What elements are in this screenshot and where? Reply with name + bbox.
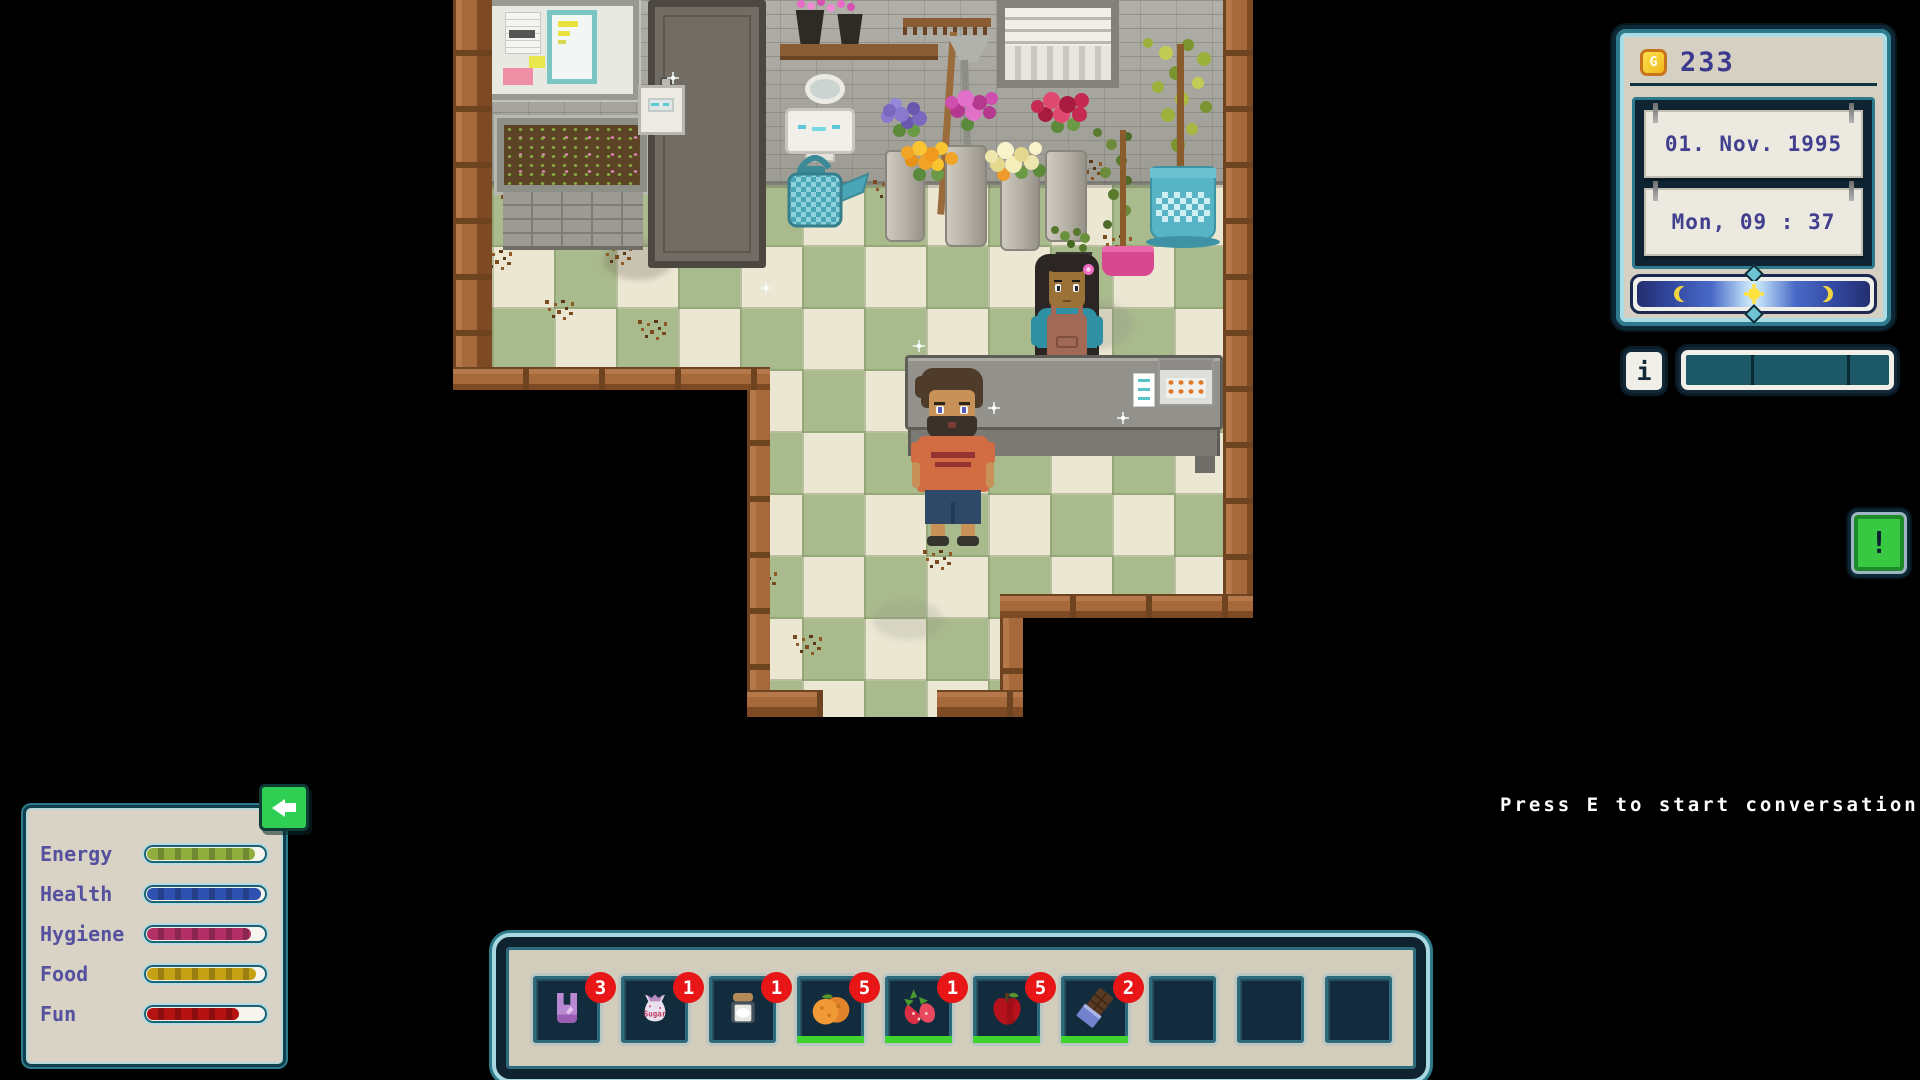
strawberries-icon — [897, 986, 941, 1034]
stat-fill — [147, 928, 251, 940]
stat-fill — [147, 848, 255, 860]
teal-plant-pot — [1150, 166, 1216, 240]
alert-button[interactable]: ! — [1848, 509, 1910, 577]
progress-segment — [1850, 355, 1889, 385]
sparkle — [1117, 412, 1129, 424]
staked-plant-leaves — [1143, 38, 1153, 48]
wood-border — [747, 690, 823, 717]
money-row: G 233 — [1630, 42, 1877, 86]
hotbar-slot-10[interactable] — [1325, 976, 1392, 1043]
stat-row-energy: Energy — [26, 834, 283, 874]
stat-row-fun: Fun — [26, 994, 283, 1034]
freshness-bar — [885, 1036, 952, 1043]
stat-bar — [144, 885, 267, 903]
wood-border — [453, 367, 770, 390]
date-plaque: 01. Nov. 1995 — [1644, 110, 1863, 178]
flower-vase — [945, 145, 987, 247]
collapse-stats-button[interactable] — [259, 784, 309, 831]
wood-border — [1000, 594, 1253, 618]
arrow-left-icon — [272, 799, 285, 817]
sticky-note-yellow — [529, 56, 545, 68]
hotbar-slot-2[interactable]: Sugar1 — [621, 976, 688, 1043]
coin-icon: G — [1640, 49, 1667, 76]
flower-vase — [1000, 165, 1040, 251]
stat-fill — [147, 1008, 239, 1020]
wall-mirror — [805, 74, 845, 104]
yellow-flowers — [901, 146, 914, 159]
hotbar-slot-7[interactable]: 2 — [1061, 976, 1128, 1043]
stat-label: Energy — [40, 842, 144, 866]
wash-basin — [638, 85, 685, 135]
sparkle — [913, 340, 925, 352]
stat-label: Fun — [40, 1002, 144, 1026]
freshness-bar — [973, 1036, 1040, 1043]
chocolate-icon — [1074, 987, 1116, 1033]
item-count-badge: 1 — [937, 972, 968, 1003]
item-count-badge: 1 — [761, 972, 792, 1003]
item-count-badge: 5 — [849, 972, 880, 1003]
window — [997, 0, 1119, 88]
hotbar-slot-6[interactable]: 5 — [973, 976, 1040, 1043]
shelf-flowers — [797, 0, 805, 8]
oranges-icon — [809, 986, 853, 1034]
hotbar-slot-4[interactable]: 5 — [797, 976, 864, 1043]
daynight-bar — [1630, 274, 1877, 314]
pink-plant-pot — [1102, 246, 1154, 276]
sugar-bag-icon: Sugar — [635, 988, 675, 1032]
stat-bar — [144, 965, 267, 983]
sparkle — [667, 72, 679, 84]
stat-bar — [144, 845, 267, 863]
wood-border — [1223, 0, 1253, 597]
sticky-note-pink — [503, 68, 533, 85]
progress-bar — [1678, 347, 1897, 393]
hotbar-slot-3[interactable]: 1 — [709, 976, 776, 1043]
moon-icon — [1817, 286, 1833, 302]
calendar-box: 01. Nov. 1995 Mon, 09 : 37 — [1632, 97, 1875, 269]
inventory-hotbar: 3Sugar115152 — [496, 937, 1426, 1079]
item-count-badge: 1 — [673, 972, 704, 1003]
stat-label: Health — [40, 882, 144, 906]
item-count-badge: 5 — [1025, 972, 1056, 1003]
window-blinds — [1005, 8, 1111, 46]
stat-bar — [144, 1005, 267, 1023]
teal-poster — [547, 10, 597, 84]
hotbar-slot-9[interactable] — [1237, 976, 1304, 1043]
sink — [785, 108, 855, 154]
cream-flowers — [985, 150, 998, 163]
stat-bar — [144, 925, 267, 943]
svg-text:Sugar: Sugar — [643, 1009, 666, 1018]
flower-vase — [885, 150, 925, 242]
watering-can — [771, 152, 871, 232]
hotbar-slot-1[interactable]: 3 — [533, 976, 600, 1043]
progress-segment — [1686, 355, 1751, 385]
hotbar-slot-5[interactable]: 1 — [885, 976, 952, 1043]
sparkle — [760, 282, 772, 294]
character-shopkeeper[interactable] — [1031, 248, 1103, 360]
item-count-badge: 3 — [585, 972, 616, 1003]
wood-border — [453, 0, 492, 390]
planter-base — [503, 192, 643, 250]
info-button[interactable]: i — [1623, 349, 1665, 393]
small-pot-plant — [1051, 226, 1059, 234]
hair-flower-icon — [1083, 264, 1094, 275]
stat-row-health: Health — [26, 874, 283, 914]
wall-shelf — [780, 44, 938, 60]
magenta-flowers — [945, 96, 958, 109]
seedling-planter — [497, 118, 647, 192]
apple-icon — [987, 988, 1027, 1032]
character-player — [915, 366, 991, 544]
stat-row-food: Food — [26, 954, 283, 994]
rake — [903, 18, 991, 27]
game-scene — [453, 0, 1253, 717]
cash-register — [1158, 358, 1214, 406]
stats-panel: EnergyHealthHygieneFoodFun — [23, 805, 286, 1067]
hotbar-slot-8[interactable] — [1149, 976, 1216, 1043]
wood-border — [747, 390, 770, 713]
freshness-bar — [1061, 1036, 1128, 1043]
jar-icon — [723, 988, 763, 1032]
notice-board — [483, 0, 639, 100]
stat-label: Hygiene — [40, 922, 144, 946]
stat-label: Food — [40, 962, 144, 986]
pink-pot-plant-leaves — [1093, 128, 1102, 137]
moon-icon — [1674, 286, 1690, 302]
progress-segment — [1754, 355, 1847, 385]
crimson-flowers — [1031, 100, 1044, 113]
sun-icon — [1748, 288, 1760, 300]
receipt-papers — [1133, 373, 1155, 407]
stat-fill — [147, 888, 261, 900]
shopping-bag-icon — [547, 988, 587, 1032]
interaction-prompt: Press E to start conversation — [1500, 794, 1919, 816]
stat-row-hygiene: Hygiene — [26, 914, 283, 954]
wood-border — [937, 690, 1023, 717]
freshness-bar — [797, 1036, 864, 1043]
money-clock-panel: G 233 01. Nov. 1995 Mon, 09 : 37 — [1612, 25, 1895, 330]
stat-fill — [147, 968, 256, 980]
money-amount: 233 — [1680, 47, 1735, 78]
item-count-badge: 2 — [1113, 972, 1144, 1003]
time-plaque: Mon, 09 : 37 — [1644, 188, 1863, 256]
purple-flowers — [883, 104, 896, 117]
